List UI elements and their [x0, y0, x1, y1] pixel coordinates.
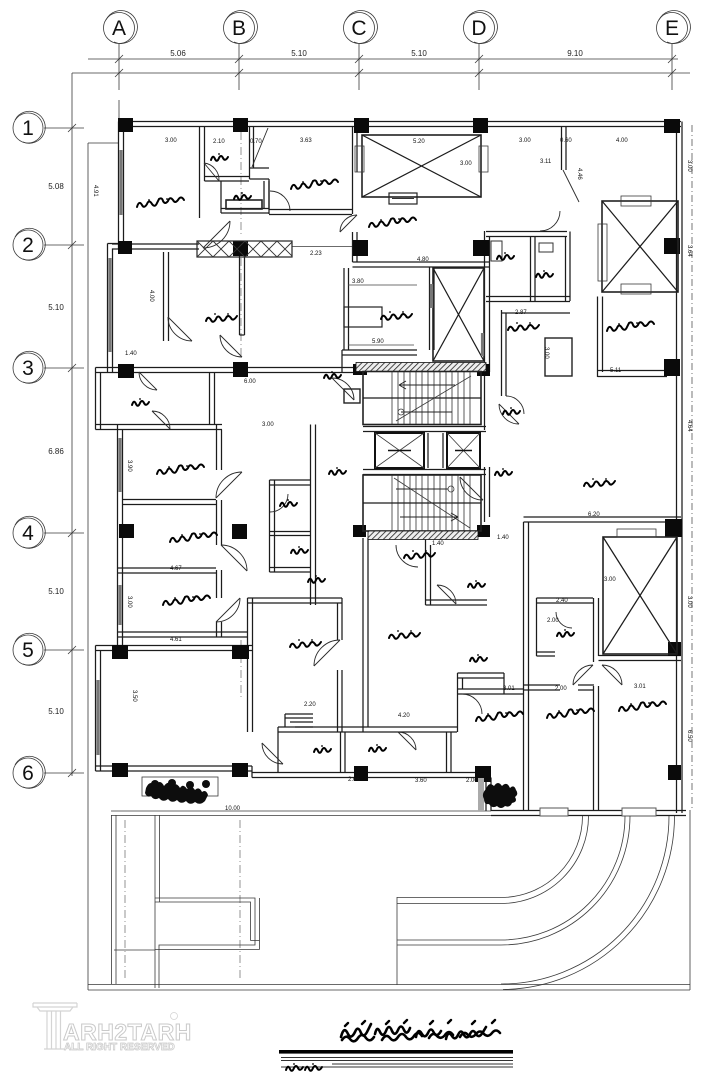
- svg-text:5.20: 5.20: [413, 139, 425, 145]
- svg-text:D: D: [471, 17, 486, 40]
- svg-text:3.01: 3.01: [634, 684, 646, 690]
- svg-text:2.40: 2.40: [556, 598, 568, 604]
- svg-text:4: 4: [22, 522, 34, 545]
- svg-text:4.91: 4.91: [92, 185, 98, 197]
- svg-text:3.00: 3.00: [460, 161, 472, 167]
- svg-text:6.20: 6.20: [588, 512, 600, 518]
- svg-text:4.61: 4.61: [170, 637, 182, 643]
- svg-text:2: 2: [22, 234, 34, 257]
- svg-text:2.87: 2.87: [515, 310, 527, 316]
- svg-text:5.10: 5.10: [48, 303, 64, 312]
- svg-text:4.80: 4.80: [417, 257, 429, 263]
- svg-text:5: 5: [22, 639, 34, 662]
- svg-text:5.10: 5.10: [291, 49, 307, 58]
- svg-text:6.50: 6.50: [686, 730, 692, 742]
- svg-text:3.90: 3.90: [126, 460, 132, 472]
- svg-text:3.00: 3.00: [543, 347, 549, 359]
- svg-text:3.64: 3.64: [686, 245, 692, 257]
- svg-text:3.00: 3.00: [126, 596, 132, 608]
- svg-text:3.00: 3.00: [686, 160, 692, 172]
- svg-text:3.00: 3.00: [604, 577, 616, 583]
- svg-text:5.10: 5.10: [48, 707, 64, 716]
- svg-text:0.70: 0.70: [250, 139, 262, 145]
- svg-text:10.00: 10.00: [225, 806, 241, 812]
- svg-text:5.90: 5.90: [372, 339, 384, 345]
- svg-text:2.00: 2.00: [547, 618, 559, 624]
- svg-text:C: C: [351, 17, 366, 40]
- svg-text:0.60: 0.60: [560, 138, 572, 144]
- svg-text:4.00: 4.00: [148, 290, 154, 302]
- svg-text:3.00: 3.00: [165, 138, 177, 144]
- svg-text:3: 3: [22, 357, 34, 380]
- svg-text:3.60: 3.60: [415, 778, 427, 784]
- svg-text:4.64: 4.64: [686, 420, 692, 432]
- svg-text:A: A: [112, 17, 126, 40]
- svg-text:3.11: 3.11: [540, 159, 552, 165]
- svg-text:5.10: 5.10: [411, 49, 427, 58]
- svg-text:9.10: 9.10: [567, 49, 583, 58]
- svg-text:6: 6: [22, 762, 34, 785]
- svg-text:4.67: 4.67: [170, 566, 182, 572]
- svg-text:ALL RIGHT RESERVED: ALL RIGHT RESERVED: [64, 1042, 175, 1053]
- svg-text:3.80: 3.80: [352, 279, 364, 285]
- svg-text:2.10: 2.10: [213, 139, 225, 145]
- svg-text:3.01: 3.01: [503, 686, 515, 692]
- svg-text:1.40: 1.40: [432, 541, 444, 547]
- svg-text:2.20: 2.20: [304, 702, 316, 708]
- svg-text:6.00: 6.00: [244, 379, 256, 385]
- svg-text:5.11: 5.11: [610, 368, 622, 374]
- svg-text:5.10: 5.10: [48, 587, 64, 596]
- svg-text:2.23: 2.23: [310, 251, 322, 257]
- svg-text:2.00: 2.00: [466, 778, 478, 784]
- svg-text:3.00: 3.00: [519, 138, 531, 144]
- svg-text:4.46: 4.46: [576, 168, 582, 180]
- svg-text:1: 1: [22, 117, 34, 140]
- svg-text:2.00: 2.00: [555, 686, 567, 692]
- svg-text:3.00: 3.00: [262, 422, 274, 428]
- svg-text:1.40: 1.40: [497, 535, 509, 541]
- svg-text:4.00: 4.00: [616, 138, 628, 144]
- svg-text:1.40: 1.40: [125, 351, 137, 357]
- svg-text:3.00: 3.00: [686, 596, 692, 608]
- svg-text:6.86: 6.86: [48, 447, 64, 456]
- svg-text:5.08: 5.08: [48, 182, 64, 191]
- svg-text:B: B: [232, 17, 246, 40]
- svg-text:E: E: [665, 17, 679, 40]
- svg-text:4.20: 4.20: [398, 713, 410, 719]
- svg-text:2.66: 2.66: [348, 777, 360, 783]
- svg-text:3.50: 3.50: [131, 690, 137, 702]
- svg-text:5.06: 5.06: [170, 49, 186, 58]
- svg-text:3.63: 3.63: [300, 138, 312, 144]
